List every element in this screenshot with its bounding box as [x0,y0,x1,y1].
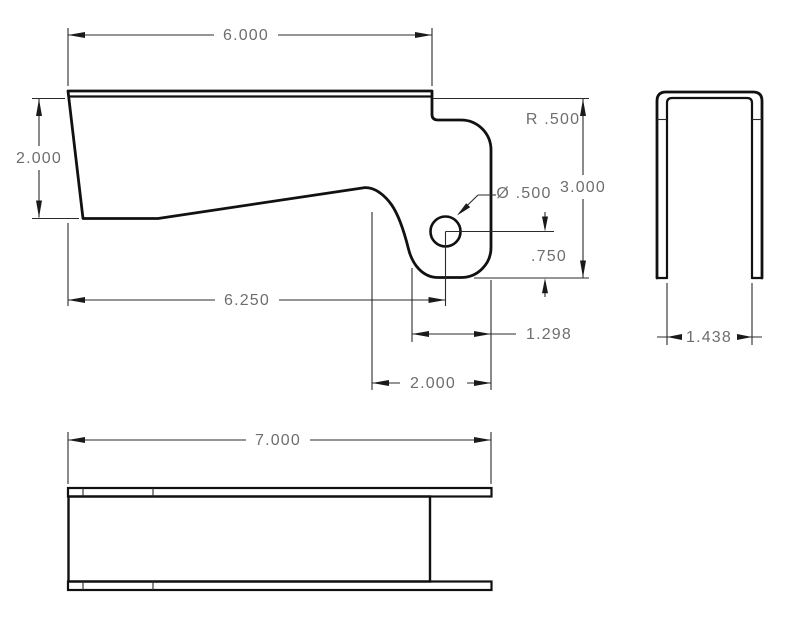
dim-hook-inner-width: 1.298 [412,268,572,390]
top-view-near-flange [68,488,492,497]
bracket-drawing: 6.000 2.000 R .500 Ø .500 [0,0,800,629]
dim-corner-radius-label: R .500 [526,111,580,128]
dim-hook-width-label: 2.000 [410,375,456,392]
dim-hole-diameter: Ø .500 [457,185,552,216]
dim-hole-from-left: 6.250 [68,223,446,309]
dim-hole-from-bottom: .750 [446,212,567,297]
end-channel-view: 1.438 [657,92,762,346]
dim-channel-inner-width: 1.438 [657,283,762,346]
dim-top-width: 6.000 [68,27,432,86]
dim-channel-inner-width-label: 1.438 [686,329,732,346]
dim-overall-length-label: 7.000 [255,432,301,449]
channel-inner-outline [667,98,752,278]
dim-top-width-label: 6.000 [223,27,269,44]
top-view-far-flange [68,582,492,591]
dim-overall-length: 7.000 [68,432,491,484]
engineering-drawing-page: 6.000 2.000 R .500 Ø .500 [0,0,800,629]
dim-hook-inner-width-label: 1.298 [526,326,572,343]
dim-left-height-label: 2.000 [16,150,62,167]
dim-left-height: 2.000 [16,99,79,219]
side-part-outline [68,91,491,278]
dim-overall-height-label: 3.000 [560,179,606,196]
channel-outer-outline [657,92,762,278]
side-profile-view: 6.000 2.000 R .500 Ø .500 [16,27,606,392]
dim-hole-from-bottom-label: .750 [531,248,567,265]
dim-hole-diameter-label: Ø .500 [496,185,551,202]
dim-hole-from-left-label: 6.250 [224,292,270,309]
top-view-web [69,497,431,582]
top-plan-view: 7.000 [68,432,492,590]
